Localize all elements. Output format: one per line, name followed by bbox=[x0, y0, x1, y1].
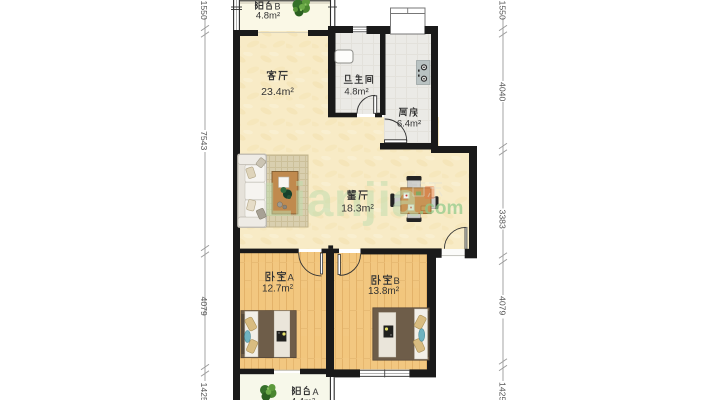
svg-text:12.7m²: 12.7m² bbox=[262, 284, 294, 295]
svg-text:3383: 3383 bbox=[498, 210, 508, 229]
svg-text:23.4m²: 23.4m² bbox=[261, 86, 294, 98]
svg-text:1550: 1550 bbox=[199, 1, 209, 20]
svg-text:4.8m²: 4.8m² bbox=[256, 11, 280, 22]
svg-text:7543: 7543 bbox=[199, 131, 209, 150]
svg-text:1425: 1425 bbox=[199, 383, 209, 400]
svg-text:4040: 4040 bbox=[498, 82, 508, 101]
svg-text:18.3m²: 18.3m² bbox=[341, 203, 374, 215]
svg-text:4.8m²: 4.8m² bbox=[344, 87, 368, 98]
svg-text:A: A bbox=[313, 387, 319, 397]
svg-text:.com: .com bbox=[419, 198, 463, 219]
svg-text:A: A bbox=[288, 273, 295, 284]
svg-text:1550: 1550 bbox=[498, 1, 508, 20]
svg-text:1425: 1425 bbox=[498, 382, 508, 400]
svg-text:Lianjia: Lianjia bbox=[263, 174, 419, 227]
svg-text:4.4m²: 4.4m² bbox=[291, 397, 315, 400]
svg-text:4079: 4079 bbox=[498, 296, 508, 315]
svg-text:6.4m²: 6.4m² bbox=[397, 119, 421, 130]
svg-text:4079: 4079 bbox=[199, 297, 209, 316]
svg-text:13.8m²: 13.8m² bbox=[368, 286, 400, 297]
